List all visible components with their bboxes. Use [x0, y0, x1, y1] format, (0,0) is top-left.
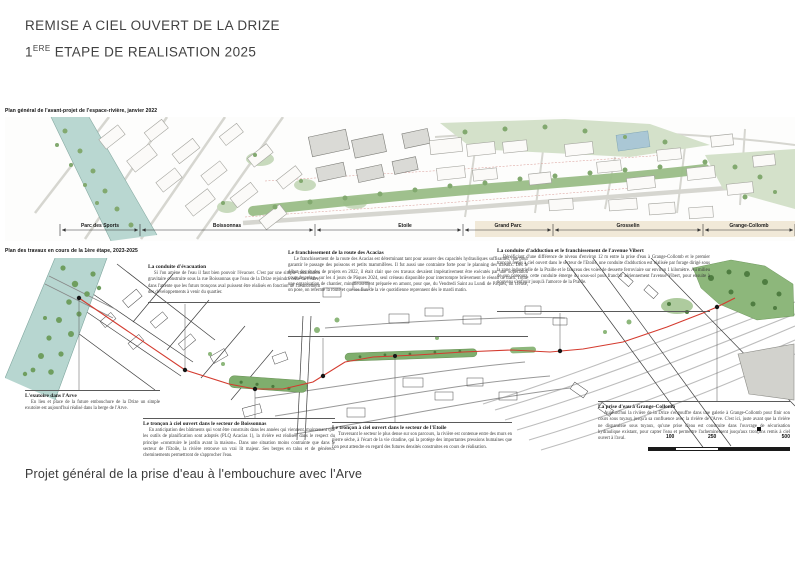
page-title-line2: 1ERE ETAPE DE REALISATION 2025 [25, 37, 280, 64]
scale-bar-segments [648, 447, 790, 451]
sector-label-grange-collomb: Grange-Collomb [729, 223, 768, 229]
plan-sheet: REMISE A CIEL OUVERT DE LA DRIZE 1ERE ET… [0, 0, 800, 566]
annotation-body: En anticipation des bâtiments qui vont ê… [143, 428, 335, 459]
scale-label-250: 250 [708, 434, 716, 440]
annotation-body: Traversant le secteur le plus dense sur … [332, 432, 512, 451]
annotation-title: Le franchissement de la route des Acacia… [288, 250, 528, 256]
sector-label-etoile: Etoile [398, 223, 412, 229]
sector-label-parc-des-sports: Parc des Sports [81, 223, 119, 229]
annotation-title: L'exutoire dans l'Arve [25, 393, 160, 399]
scale-label-500: 500 [782, 434, 790, 440]
annotation-troncon-boissonnas: Le tronçon à ciel ouvert dans le secteur… [143, 418, 335, 459]
annotation-title: Le tronçon à ciel ouvert dans le secteur… [332, 425, 512, 431]
annotation-exutoire-arve: L'exutoire dans l'Arve En lieu et place … [25, 390, 160, 413]
north-marker [757, 427, 761, 431]
scale-label-100: 100 [666, 434, 674, 440]
top-map: Parc des Sports Boissonnas Etoile Grand … [5, 117, 795, 241]
annotation-title: La prise d'eau à Grange-Collomb [598, 404, 790, 410]
top-map-svg: Parc des Sports Boissonnas Etoile Grand … [5, 117, 795, 241]
annotation-conduite-adduction-vibert: La conduite d'adduction et le franchisse… [497, 248, 710, 312]
annotation-body: Le franchissement de la route des Acacia… [288, 257, 528, 295]
page-title: REMISE A CIEL OUVERT DE LA DRIZE 1ERE ET… [25, 14, 280, 64]
scale-bar: 100 250 500 [648, 434, 790, 454]
top-map-caption: Plan général de l'avant-projet de l'espa… [5, 108, 157, 114]
bottom-plan-caption: Plan des travaux en cours de la 1ère éta… [5, 248, 138, 254]
annotation-troncon-etoile: Le tronçon à ciel ouvert dans le secteur… [332, 422, 512, 451]
page-title-line1: REMISE A CIEL OUVERT DE LA DRIZE [25, 14, 280, 37]
sector-label-boissonnas: Boissonnas [213, 223, 242, 229]
sector-label-grosselin: Grosselin [616, 223, 639, 229]
sector-label-grand-parc: Grand Parc [495, 223, 522, 229]
annotation-body: En lieu et place de la future embouchure… [25, 400, 160, 413]
annotation-franchissement-acacias: Le franchissement de la route des Acacia… [288, 250, 528, 337]
footer-caption: Projet général de la prise d'eau à l'emb… [25, 467, 362, 481]
annotation-title: La conduite d'adduction et le franchisse… [497, 248, 710, 254]
arve-river [5, 258, 117, 400]
open-river-boissonnas [229, 375, 308, 392]
annotation-body: Bénéficiant d'une différence de niveau d… [497, 255, 710, 286]
annotation-title: Le tronçon à ciel ouvert dans le secteur… [143, 421, 335, 427]
